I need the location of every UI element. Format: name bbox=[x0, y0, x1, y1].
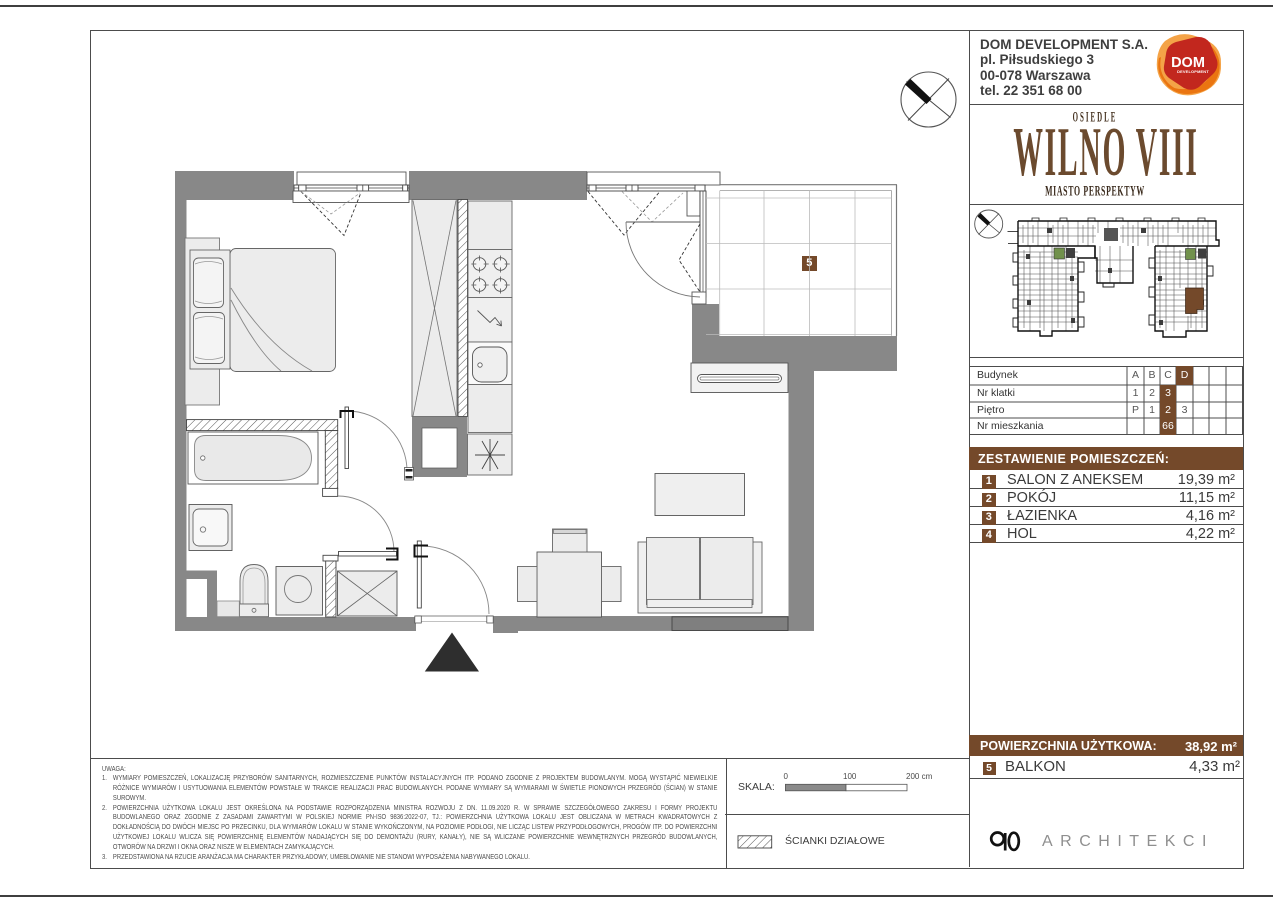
svg-text:DEVELOPMENT: DEVELOPMENT bbox=[1177, 69, 1209, 74]
